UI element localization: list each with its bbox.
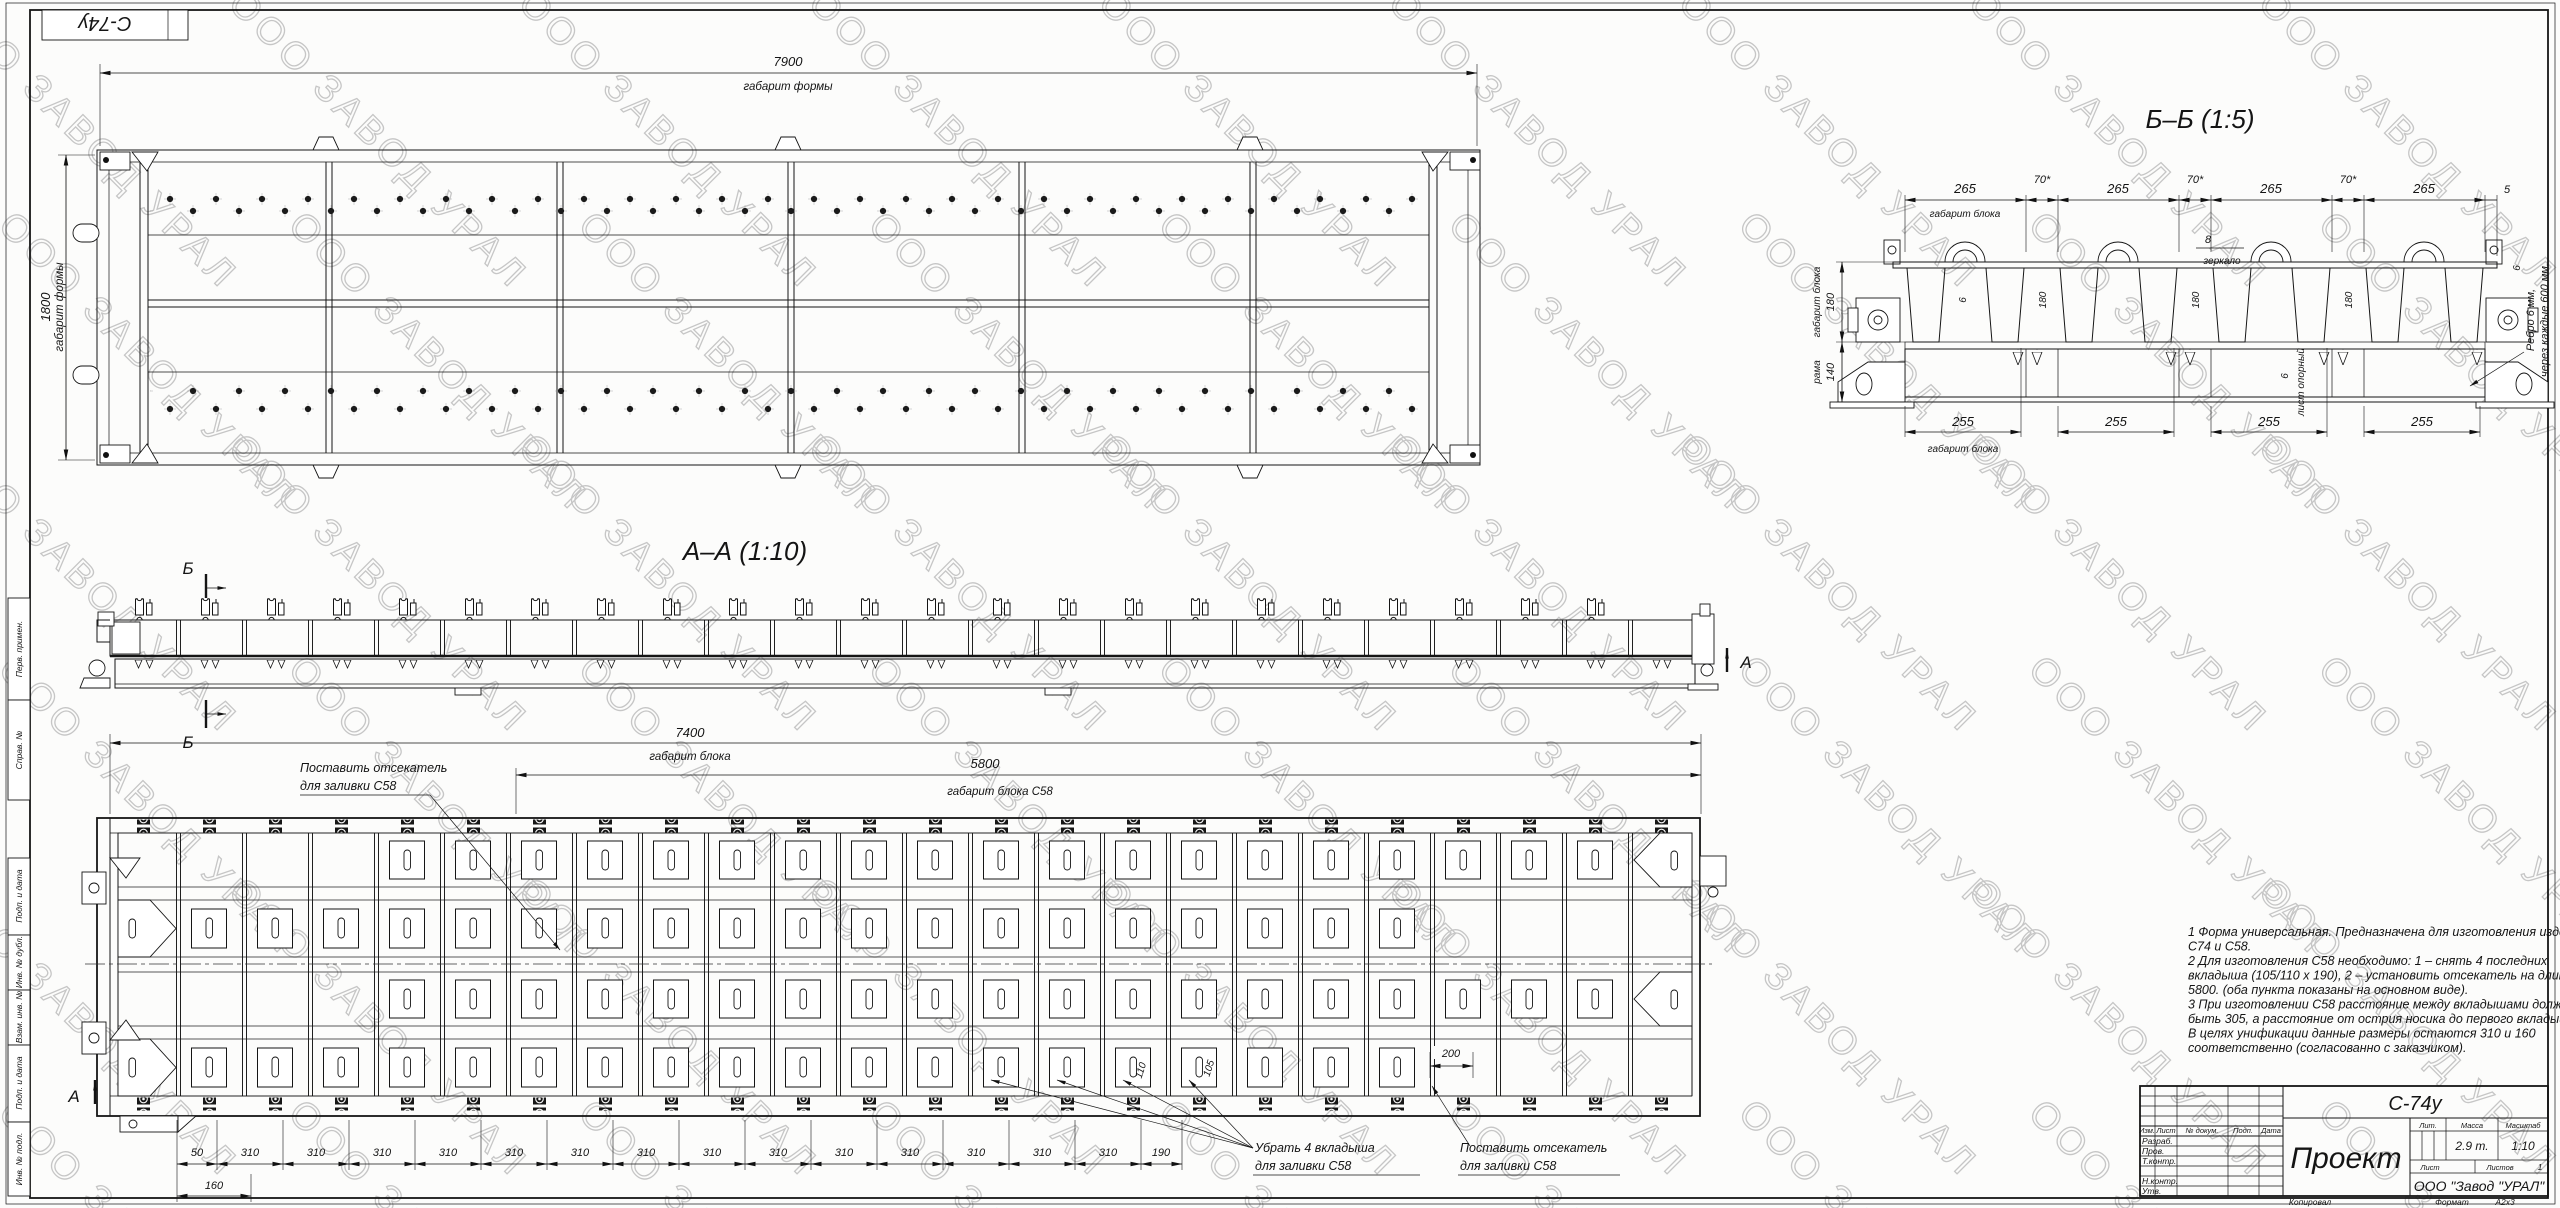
dim-text: 310 <box>835 1147 854 1159</box>
col-header: Подп. <box>2233 1126 2253 1135</box>
doc-number: С-74у <box>2388 1093 2442 1115</box>
sheet-label: Лист <box>2419 1163 2439 1172</box>
row-label: Утв. <box>2141 1186 2161 1196</box>
plan-bottom-dims: 50 310 310 310 310 310 310 310 310 310 3… <box>177 1120 1182 1202</box>
dim-text: 310 <box>637 1147 656 1159</box>
dim-text: 180 <box>1825 292 1837 311</box>
bottom-rail-bolts <box>110 1098 1692 1111</box>
dim-label: габарит блока <box>1928 443 1999 455</box>
dim-text: 310 <box>241 1147 260 1159</box>
col-header: Дата <box>2260 1126 2281 1135</box>
scale-label: Масштаб <box>2505 1121 2541 1130</box>
dim-text: 310 <box>901 1147 920 1159</box>
dim-text: 255 <box>1951 414 1974 429</box>
mirror-plate <box>1893 262 2497 268</box>
dim-text: 310 <box>307 1147 326 1159</box>
cut-mark-b-bottom: Б <box>182 700 226 752</box>
frame-label: Подп. и дата <box>14 1056 24 1109</box>
dim-text: 310 <box>703 1147 722 1159</box>
format-label: Формат <box>2435 1197 2469 1207</box>
clamps-row <box>130 598 1640 620</box>
company-name: ООО "Завод "УРАЛ" <box>2414 1178 2545 1194</box>
note-line: быть 305, а расстояние от острия носика … <box>2188 1012 2560 1026</box>
frame-label: Инв. № подл. <box>14 1133 24 1186</box>
cad-drawing: С-74у Перв. примен. Справ. № Подп. и дат… <box>0 0 2560 1208</box>
anchor-holes-top <box>150 190 1420 220</box>
dim-label: габарит блока <box>1930 208 2001 220</box>
dim-text: 1800 <box>38 292 53 322</box>
dim-text: 310 <box>439 1147 458 1159</box>
dim-1800: 1800 габарит формы <box>38 155 95 460</box>
cut-mark-a-right: А <box>1727 648 1752 672</box>
col-header: Лист <box>2155 1126 2175 1135</box>
dim-label: лист опорный <box>2296 348 2307 417</box>
aa-right-end <box>1688 604 1718 690</box>
dim-text: 7400 <box>676 725 706 740</box>
dim-text: 265 <box>2106 181 2129 196</box>
dim-label: габарит блока <box>649 751 730 763</box>
dim-text: 6 <box>1958 297 1969 303</box>
section-title: Б–Б (1:5) <box>2146 104 2255 134</box>
note-text: через каждые 600 мм. <box>2539 263 2551 377</box>
cut-label: А <box>1739 653 1751 672</box>
section-title: А–А (1:10) <box>681 536 807 566</box>
note-text: для заливки С58 <box>1460 1159 1556 1173</box>
dim-5800: 5800 габарит блока С58 <box>516 756 1701 814</box>
frame-label: Инв. № дубл. <box>14 936 24 988</box>
dim-text: 255 <box>2410 414 2433 429</box>
note-text: для заливки С58 <box>300 779 396 793</box>
sheets-label: Листов <box>2485 1163 2513 1172</box>
dim-text: 265 <box>2412 181 2435 196</box>
note-line: 1 Форма универсальная. Предназначена для… <box>2188 925 2560 939</box>
technical-notes: 1 Форма универсальная. Предназначена для… <box>2187 925 2560 1055</box>
dim-label: габарит блока С58 <box>947 786 1053 798</box>
frame-label: Справ. № <box>14 731 24 770</box>
dim-label: рама <box>1812 360 1823 385</box>
lit-label: Лит. <box>2418 1121 2437 1130</box>
dim-text: 310 <box>505 1147 524 1159</box>
format-value: А2х3 <box>2494 1197 2515 1207</box>
inserts-row-4 <box>176 1039 1430 1096</box>
row-label: Пров. <box>2142 1146 2164 1156</box>
dim-text: 310 <box>1099 1147 1118 1159</box>
dim-text: 70* <box>2340 174 2357 186</box>
dim-text: 265 <box>2259 181 2282 196</box>
cut-label: Б <box>182 559 193 578</box>
dim-text: 310 <box>1033 1147 1052 1159</box>
support-sheet <box>1905 342 2485 349</box>
note-line: вкладыша (105/110 х 190), 2 – установить… <box>2188 969 2560 983</box>
frame-label: Перв. примен. <box>14 621 24 678</box>
corner-doc-number: С-74у <box>77 12 131 34</box>
dim-text: 180 <box>2344 291 2355 308</box>
dim-text: 310 <box>373 1147 392 1159</box>
row-label: Разраб. <box>2142 1136 2173 1146</box>
scale-value: 1:10 <box>2511 1139 2535 1153</box>
note-line: 2 Для изготовления С58 необходимо: 1 – с… <box>2187 954 2548 968</box>
plan-view: 7400 габарит блока 5800 габарит блока С5… <box>67 648 1751 1202</box>
dim-text: 200 <box>1441 1048 1461 1060</box>
note-text: Ребро 6 мм, <box>2525 289 2537 351</box>
section-view-aa: А–А (1:10) Б Б <box>80 536 1718 752</box>
bottom-frame <box>1830 349 2554 408</box>
col-header: Изм. <box>2139 1126 2155 1135</box>
dim-text: 5 <box>2504 184 2511 196</box>
mass-value: 2.9 т. <box>2454 1139 2488 1153</box>
note-text: Поставить отсекатель <box>300 761 447 775</box>
frame-label: Взам. инв. № <box>14 991 24 1044</box>
dim-text: 255 <box>2257 414 2280 429</box>
dim-text: 7900 <box>774 54 804 69</box>
dim-text: 50 <box>191 1147 204 1159</box>
bb-top-dims: 265 265 265 265 70* 70* 70* 5 габарит бл… <box>1905 174 2511 267</box>
dim-text: 180 <box>2191 291 2202 308</box>
row-label: Т.контр. <box>2142 1156 2176 1166</box>
inserts-row-2 <box>176 900 1430 957</box>
copied-label: Копировал <box>2289 1197 2331 1207</box>
dim-text: 6 <box>2280 373 2291 379</box>
cut-label: А <box>67 1087 79 1106</box>
anchor-holes-bottom <box>150 385 1420 415</box>
note-line: 5800. (оба пункта показаны на основном в… <box>2188 983 2468 997</box>
row-label: Н.контр. <box>2142 1176 2178 1186</box>
note-text: Убрать 4 вкладыша <box>1254 1141 1375 1155</box>
dim-text: 310 <box>571 1147 590 1159</box>
cut-mark-b-top: Б <box>182 559 226 602</box>
dim-text: 160 <box>205 1180 224 1192</box>
note-line: В целях унификации данные размеры остают… <box>2188 1027 2536 1041</box>
cut-label: Б <box>182 733 193 752</box>
note-line: С74 и С58. <box>2188 940 2251 954</box>
mass-label: Масса <box>2461 1121 2483 1130</box>
dim-text: 70* <box>2187 174 2204 186</box>
foot-pad <box>1045 688 1071 695</box>
dim-text: 8 <box>2205 234 2212 246</box>
frame-left-column: Перв. примен. Справ. № Подп. и дата Инв.… <box>8 598 30 1196</box>
note-text: для заливки С58 <box>1255 1159 1351 1173</box>
foot-pad <box>455 688 481 695</box>
drawing-sheet: ООО ЗАВОД УРАЛООО ЗАВОД УРАЛООО ЗАВОД УР… <box>0 0 2560 1208</box>
note-text: Поставить отсекатель <box>1460 1141 1607 1155</box>
top-rail-bolts <box>110 820 1692 833</box>
note-line: 3 При изготовлении С58 расстояние между … <box>2188 998 2560 1012</box>
dim-text: 255 <box>2104 414 2127 429</box>
project-title: Проект <box>2290 1142 2401 1175</box>
dim-text: 5800 <box>971 756 1001 771</box>
note-line: соответственно (согласованно с заказчико… <box>2188 1041 2466 1055</box>
dim-text: 180 <box>2038 291 2049 308</box>
top-view: 7900 габарит формы 1800 габарит формы <box>38 54 1480 478</box>
dim-text: 70* <box>2034 174 2051 186</box>
title-block: С-74у Проект Изм. Лист № докум. Подп. Да… <box>2139 1086 2548 1207</box>
sheets-value: 1 <box>2538 1162 2543 1172</box>
dim-text: 6 <box>2512 265 2523 271</box>
dim-label: габарит формы <box>743 81 833 93</box>
dim-text: 190 <box>1152 1147 1171 1159</box>
inserts-row-1 <box>374 833 1628 887</box>
section-view-bb: Б–Б (1:5) <box>1811 104 2554 455</box>
dim-label: габарит блока <box>1811 266 1823 337</box>
frame-label: Подп. и дата <box>14 869 24 922</box>
dim-label: зеркало <box>2202 256 2240 267</box>
dim-7900: 7900 габарит формы <box>100 54 1477 146</box>
dim-label: габарит формы <box>54 262 66 352</box>
inserts-row-3 <box>374 972 1628 1026</box>
dim-text: 265 <box>1953 181 1976 196</box>
dim-text: 310 <box>967 1147 986 1159</box>
dim-text: 140 <box>1825 362 1837 381</box>
cut-mark-a-left: А <box>67 1080 95 1106</box>
col-header: № докум. <box>2185 1126 2218 1135</box>
dim-text: 310 <box>769 1147 788 1159</box>
